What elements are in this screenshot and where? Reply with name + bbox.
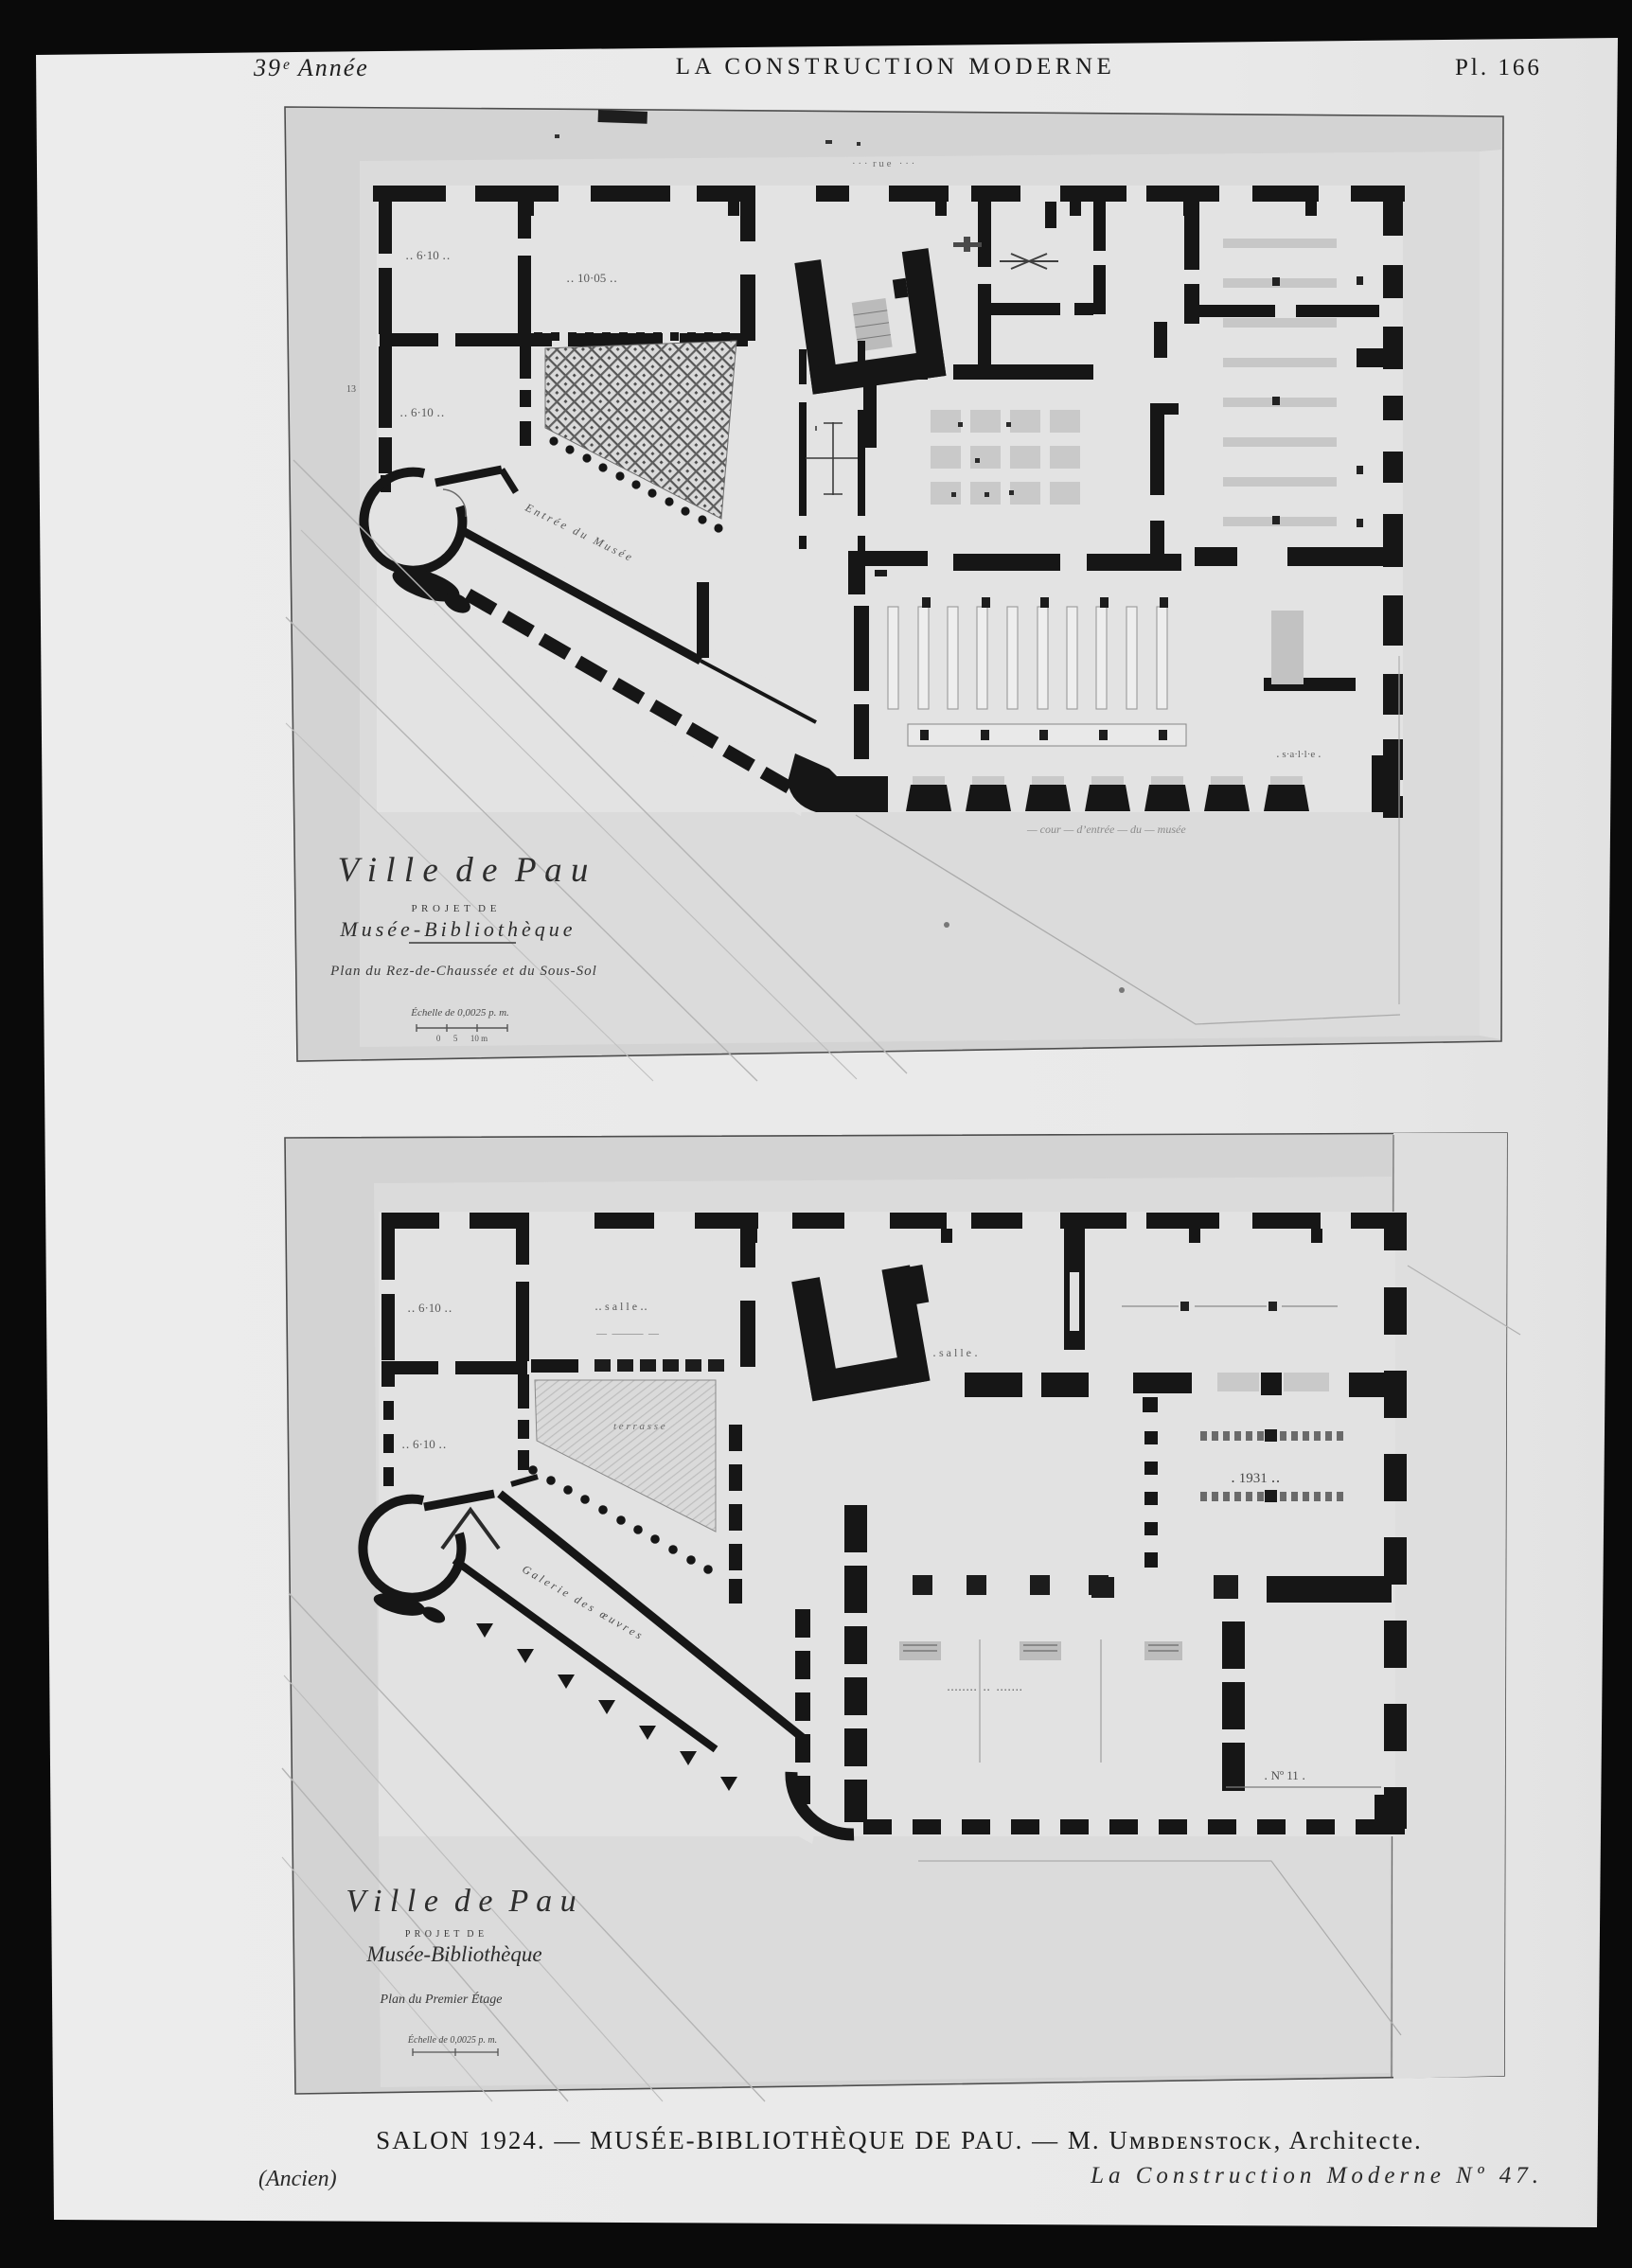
svg-text:SALON 1924. — MUSÉE-BIBLIOTHÈQ: SALON 1924. — MUSÉE-BIBLIOTHÈQUE DE PAU.… (376, 2126, 1423, 2154)
svg-text:․ 1931 ․․: ․ 1931 ․․ (1231, 1471, 1281, 1486)
svg-text:Musée-Bibliothèque: Musée-Bibliothèque (365, 1942, 541, 1966)
svg-text:— cour — d’entrée — du — musée: — cour — d’entrée — du — musée (1026, 823, 1186, 836)
svg-text:․ s·a·l·l·e ․: ․ s·a·l·l·e ․ (1276, 749, 1322, 760)
svg-text:․․ 10·05 ․․: ․․ 10·05 ․․ (566, 271, 617, 285)
svg-text:t e r r a s s e: t e r r a s s e (613, 1421, 665, 1432)
svg-text:V i l l e d e P a u: V i l l e d e P a u (338, 851, 589, 890)
svg-text:․․․․․․․․ ․․ ․․․․․․․: ․․․․․․․․ ․․ ․․․․․․․ (947, 1680, 1022, 1693)
svg-text:Plan du Premier Étage: Plan du Premier Étage (380, 1991, 503, 2007)
svg-text:Échelle de 0,0025 p. m.: Échelle de 0,0025 p. m. (410, 1007, 509, 1019)
svg-text:․․ s a l l e ․․: ․․ s a l l e ․․ (594, 1300, 647, 1313)
svg-text:0 5 10 m: 0 5 10 m (436, 1034, 488, 1043)
svg-text:․ s a l l e ․: ․ s a l l e ․ (932, 1346, 978, 1359)
svg-text:(Ancien): (Ancien) (258, 2167, 337, 2191)
svg-text:13: 13 (346, 384, 356, 395)
svg-text:Musée-Bibliothèque: Musée-Bibliothèque (339, 917, 576, 941)
svg-text:La Construction Moderne Nº 47.: La Construction Moderne Nº 47. (1090, 2163, 1543, 2188)
svg-text:LA CONSTRUCTION MODERNE: LA CONSTRUCTION MODERNE (676, 54, 1116, 80)
svg-text:․․ 6·10 ․․: ․․ 6·10 ․․ (405, 248, 451, 262)
svg-text:V i l l e d e P a u: V i l l e d e P a u (346, 1884, 576, 1919)
svg-text:· · · r u e · · ·: · · · r u e · · · (852, 158, 914, 169)
svg-text:Échelle de 0,0025 p. m.: Échelle de 0,0025 p. m. (407, 2034, 497, 2046)
svg-text:— ——— —: — ——— — (595, 1328, 660, 1339)
svg-text:39ᵉ Année: 39ᵉ Année (253, 54, 369, 81)
svg-text:Pl. 166: Pl. 166 (1455, 55, 1542, 80)
svg-text:Plan du Rez-de-Chaussée et du: Plan du Rez-de-Chaussée et du Sous-Sol (329, 964, 597, 979)
svg-text:․ Nº 11 ․: ․ Nº 11 ․ (1264, 1768, 1305, 1782)
svg-text:․․ 6·10 ․․: ․․ 6·10 ․․ (401, 1437, 447, 1451)
svg-text:․․ 6·10 ․․: ․․ 6·10 ․․ (407, 1301, 452, 1315)
svg-text:P R O J E T D E: P R O J E T D E (405, 1929, 485, 1940)
svg-text:P R O J E T D E: P R O J E T D E (412, 903, 498, 914)
svg-text:․․ 6·10 ․․: ․․ 6·10 ․․ (399, 405, 445, 419)
